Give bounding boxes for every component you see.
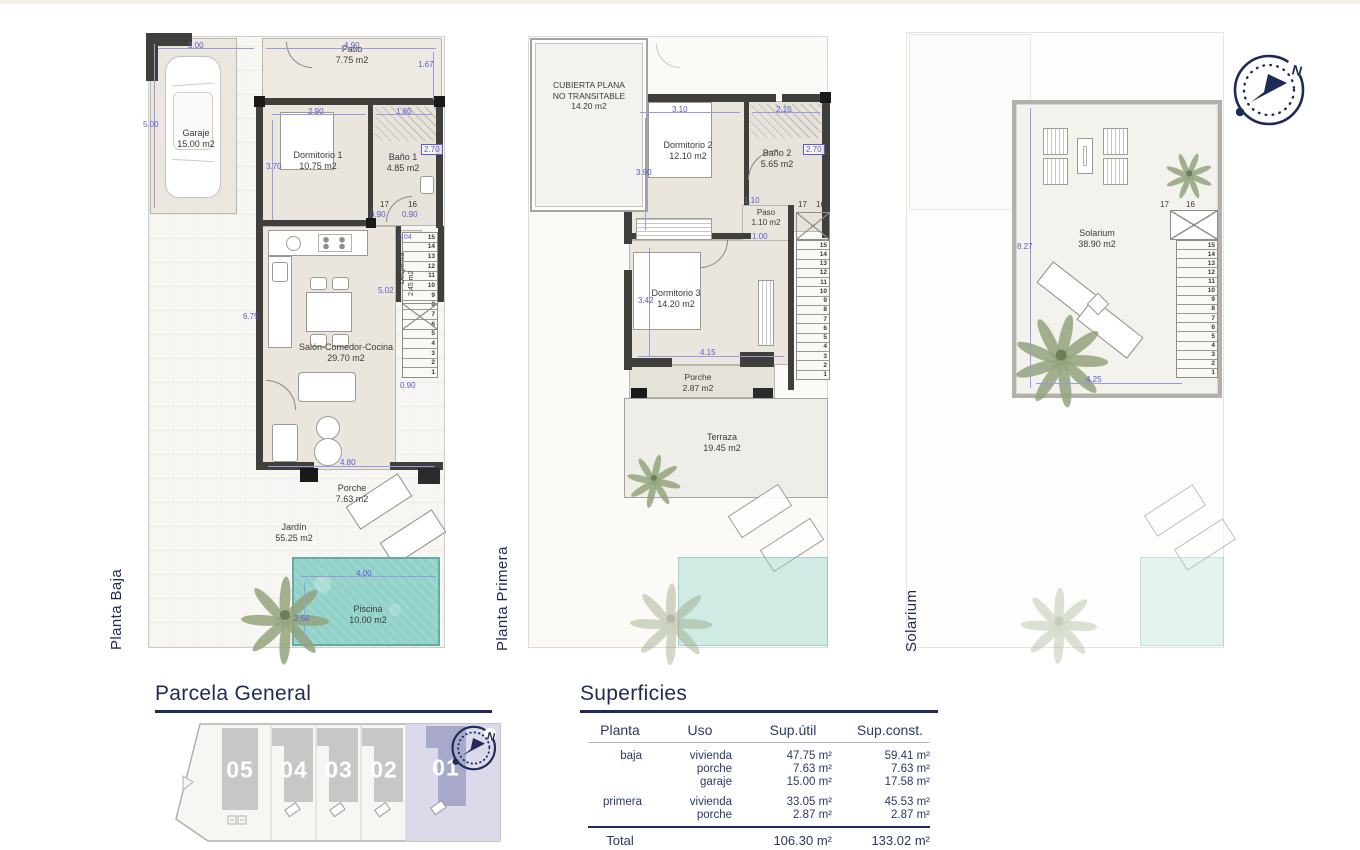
parcela-title-rule: [155, 710, 492, 713]
cell-uso: garaje: [664, 776, 732, 789]
dim-line: [1036, 383, 1182, 384]
compass-needle-icon: [1251, 74, 1287, 102]
row-group-planta-primera: primera: [598, 796, 642, 809]
stair-number: 4: [1177, 342, 1217, 351]
patio-chair: [1043, 128, 1068, 155]
stair-number: 2: [1177, 360, 1217, 369]
util-col-primera: 33.05 m² 2.87 m²: [754, 796, 832, 822]
cell-sup-util: 7.63 m²: [754, 763, 832, 776]
total-rule: [588, 826, 930, 828]
cell-uso: porche: [664, 809, 732, 822]
cell-sup-const: 7.63 m²: [852, 763, 930, 776]
col-header-sup-const: Sup.const.: [857, 722, 923, 738]
cell-sup-const: 17.58 m²: [852, 776, 930, 789]
dim: 4.25: [1086, 375, 1102, 384]
patio-table-slot: [1083, 146, 1087, 166]
stair-count: 16: [1186, 200, 1195, 209]
stair-number: 10: [1177, 287, 1217, 296]
uso-col-primera: vivienda porche: [664, 796, 732, 822]
stair-number: 15: [1177, 241, 1217, 250]
stair-count: 17: [1160, 200, 1169, 209]
compass-rose: N: [1231, 50, 1311, 130]
compass-dot: [453, 759, 459, 765]
dim: 8.27: [1017, 242, 1033, 251]
const-col-primera: 45.53 m² 2.87 m²: [852, 796, 930, 822]
stair-number: 3: [1177, 351, 1217, 360]
cell-sup-const: 2.87 m²: [852, 809, 930, 822]
ghost-pool: [1140, 557, 1224, 646]
total-sup-const: 133.02 m²: [852, 834, 930, 847]
const-col-baja: 59.41 m² 7.63 m² 17.58 m²: [852, 750, 930, 789]
cell-uso: porche: [664, 763, 732, 776]
plot-number-02: 02: [370, 757, 398, 784]
stair-number: 7: [1177, 314, 1217, 323]
stair-number: 8: [1177, 305, 1217, 314]
util-col-baja: 47.75 m² 7.63 m² 15.00 m²: [754, 750, 832, 789]
uso-col-baja: vivienda porche garaje: [664, 750, 732, 789]
superficies-title-rule: [580, 710, 938, 713]
patio-chair: [1103, 128, 1128, 155]
row-group-planta-baja: baja: [598, 750, 642, 763]
stair-number: 5: [1177, 332, 1217, 341]
header-rule: [588, 742, 930, 743]
compass-rose-small: N: [450, 723, 500, 773]
total-sup-util: 106.30 m²: [754, 834, 832, 847]
stair-number: 13: [1177, 259, 1217, 268]
stair-number: 14: [1177, 250, 1217, 259]
compass-dot: [1236, 108, 1244, 116]
label-solarium: Solarium38.90 m2: [1066, 228, 1128, 251]
floor-title-solarium: Solarium: [903, 572, 920, 652]
col-header-planta: Planta: [600, 722, 640, 738]
stair-landing: [1170, 210, 1218, 240]
stair-number: 6: [1177, 323, 1217, 332]
plan-sheet: 151413121110987654321 Garaje15.00 m2 Pat…: [0, 0, 1360, 850]
cell-sup-const: 59.41 m²: [852, 750, 930, 763]
stair-number: 1: [1177, 369, 1217, 377]
stair-number: 12: [1177, 268, 1217, 277]
cell-sup-util: 15.00 m²: [754, 776, 832, 789]
cell-uso: vivienda: [664, 796, 732, 809]
cell-uso: vivienda: [664, 750, 732, 763]
cell-sup-util: 2.87 m²: [754, 809, 832, 822]
patio-chair: [1103, 158, 1128, 185]
plot-number-04: 04: [280, 757, 308, 784]
stair-number: 11: [1177, 278, 1217, 287]
superficies-section: Superficies Planta Uso Sup.útil Sup.cons…: [578, 676, 940, 850]
patio-chair: [1043, 158, 1068, 185]
plot-number-03: 03: [325, 757, 353, 784]
plot-number-05: 05: [226, 757, 254, 784]
col-header-uso: Uso: [688, 722, 713, 738]
stair-number: 9: [1177, 296, 1217, 305]
cell-sup-const: 45.53 m²: [852, 796, 930, 809]
parcela-title: Parcela General: [155, 682, 311, 706]
total-label: Total: [598, 834, 642, 847]
superficies-title: Superficies: [580, 682, 687, 706]
compass-needle-icon: [463, 738, 486, 756]
stairs-solarium: 151413121110987654321: [1176, 240, 1218, 378]
cell-sup-util: 47.75 m²: [754, 750, 832, 763]
cell-sup-util: 33.05 m²: [754, 796, 832, 809]
col-header-sup-util: Sup.útil: [770, 722, 817, 738]
